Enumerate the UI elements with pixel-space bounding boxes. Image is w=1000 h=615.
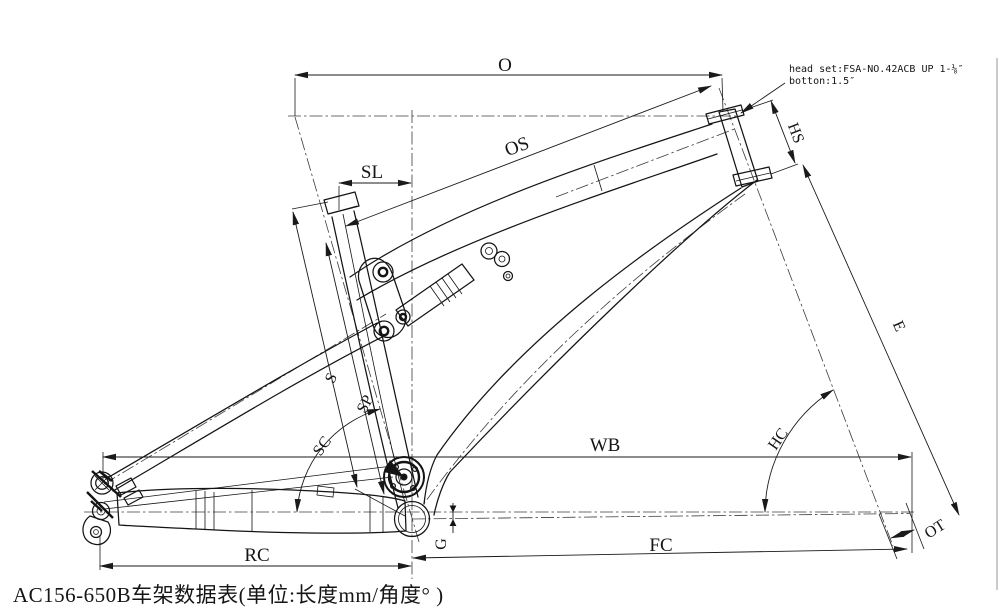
- steering-axis: [719, 88, 893, 546]
- centerlines: [84, 88, 916, 579]
- label-FC: FC: [649, 535, 672, 556]
- footer-title: AC156-650B车架数据表(单位:长度mm/角度° ): [13, 583, 444, 607]
- derailleur-hanger: [83, 516, 111, 545]
- dim-line-E: [803, 165, 959, 515]
- head-tube: [706, 105, 772, 187]
- chain: [104, 466, 393, 509]
- dim-line-OS: [346, 86, 711, 226]
- label-HC: HC: [765, 425, 792, 453]
- seat-stay: [109, 323, 382, 491]
- dim-line-SP: [326, 243, 384, 494]
- headset-note-line2: botton:1.5″: [789, 76, 855, 87]
- bike-frame: [83, 105, 772, 545]
- label-E: E: [889, 318, 909, 334]
- seatstay-axis: [104, 314, 386, 484]
- chainring: [384, 457, 424, 497]
- top-tube: [350, 124, 717, 300]
- note-leader-line: [741, 83, 785, 113]
- drawing-canvas: O OS SL HS E WB HC S SP SC G RC FC OT he…: [0, 0, 1000, 615]
- bb-to-front-axle-line: [412, 514, 910, 520]
- top-tube-seam: [594, 165, 602, 191]
- bike-frame-diagram: O OS SL HS E WB HC S SP SC G RC FC OT he…: [0, 0, 1000, 615]
- label-S: S: [322, 370, 341, 386]
- label-RC: RC: [244, 545, 269, 566]
- chain-stay: [104, 466, 406, 533]
- lower-pivot: [374, 321, 394, 341]
- down-tube: [424, 180, 757, 515]
- rear-shock: [396, 243, 513, 326]
- label-WB: WB: [590, 435, 621, 456]
- shock-valve: [504, 272, 513, 281]
- seat-tube: [324, 192, 418, 508]
- upper-pivot: [373, 262, 393, 282]
- label-OT: OT: [922, 516, 949, 542]
- label-G: G: [433, 538, 450, 550]
- label-SL: SL: [361, 162, 383, 183]
- dim-line-OT: [891, 530, 914, 538]
- headset-note-line1: head set:FSA-NO.42ACB UP 1-⅛″: [789, 63, 964, 75]
- label-O: O: [498, 55, 512, 76]
- down-tube-axis: [423, 194, 745, 505]
- shock-eyelet-pivot: [396, 310, 410, 324]
- shock-body: [396, 264, 474, 326]
- top-tube-axis: [556, 128, 737, 197]
- label-SP: SP: [354, 392, 377, 416]
- dimension-labels: O OS SL HS E WB HC S SP SC G RC FC OT he…: [13, 55, 964, 607]
- label-HS: HS: [784, 121, 807, 146]
- chain-stay-joints: [196, 490, 383, 532]
- shock-spring-collar: [430, 274, 462, 306]
